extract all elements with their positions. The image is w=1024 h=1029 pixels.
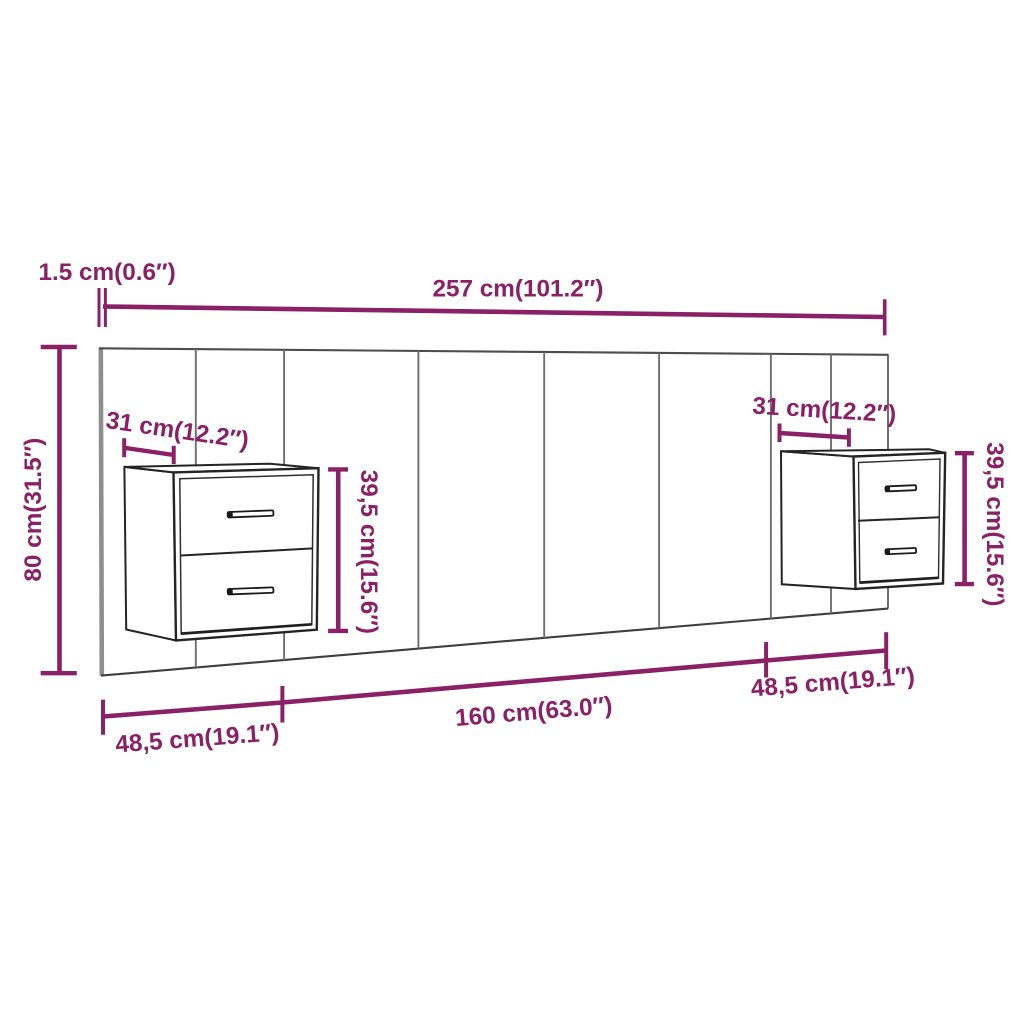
- svg-text:39,5 cm(15.6″): 39,5 cm(15.6″): [981, 442, 1008, 606]
- svg-text:39,5 cm(15.6″): 39,5 cm(15.6″): [355, 470, 382, 634]
- svg-text:257 cm(101.2″): 257 cm(101.2″): [432, 275, 603, 302]
- svg-text:1.5 cm(0.6″): 1.5 cm(0.6″): [39, 259, 176, 286]
- svg-text:80 cm(31.5″): 80 cm(31.5″): [20, 438, 47, 582]
